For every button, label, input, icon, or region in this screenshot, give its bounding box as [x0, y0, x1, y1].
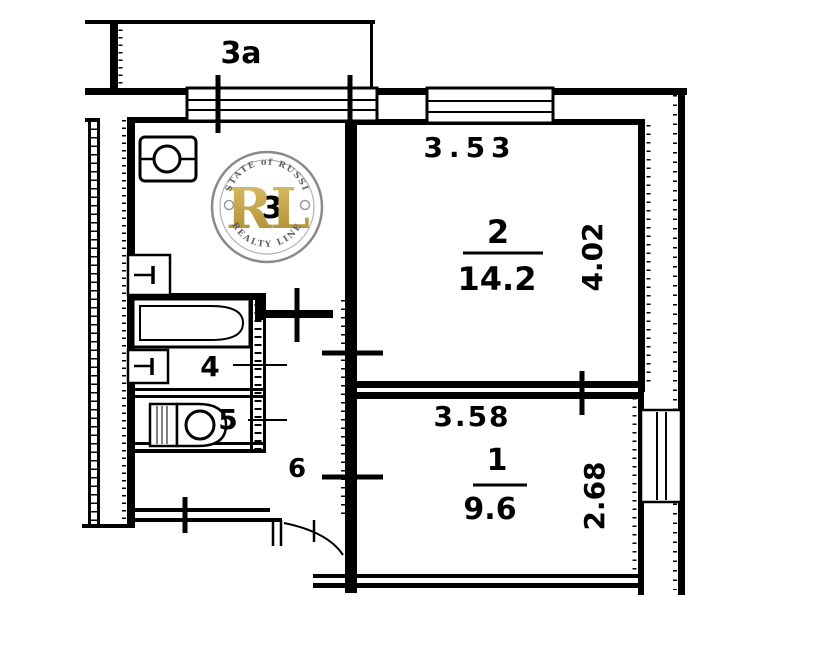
bedroom-area: 9.6 [463, 492, 516, 527]
kitchen-stove-icon [128, 255, 170, 295]
balcony-label: 3a [220, 36, 261, 71]
balcony-top-wall [85, 20, 375, 24]
living-width-dim: 3.53 [423, 131, 516, 164]
bathroom-number: 4 [200, 350, 219, 383]
watermark-badge: 3 RL ESTATE of RUSSIA REALTY LINE [0, 0, 322, 262]
bedroom-height-dim: 2.68 [578, 461, 611, 530]
bedroom-width-dim: 3.58 [433, 400, 510, 433]
toilet-number: 5 [218, 403, 237, 436]
living-room-window [427, 88, 553, 123]
living-area: 14.2 [458, 260, 537, 298]
toilet-icon [150, 404, 226, 446]
balcony-right-wall [370, 20, 373, 88]
washbasin-icon [128, 350, 168, 383]
bedroom-window [641, 410, 681, 502]
balcony-left-wall [110, 20, 118, 90]
floor-plan-page: 3a 3.53 2 14.2 4.02 3.58 1 9.6 2.68 4 5 … [0, 0, 837, 650]
living-number: 2 [487, 213, 509, 251]
bathtub-icon [133, 299, 250, 347]
kitchen-sink-icon [140, 137, 196, 181]
bedroom-number: 1 [487, 443, 508, 478]
floor-plan-drawing: 3a 3.53 2 14.2 4.02 3.58 1 9.6 2.68 4 5 … [0, 0, 837, 650]
hallway-number: 6 [288, 454, 306, 484]
entrance-door [273, 520, 343, 555]
living-height-dim: 4.02 [576, 222, 609, 291]
